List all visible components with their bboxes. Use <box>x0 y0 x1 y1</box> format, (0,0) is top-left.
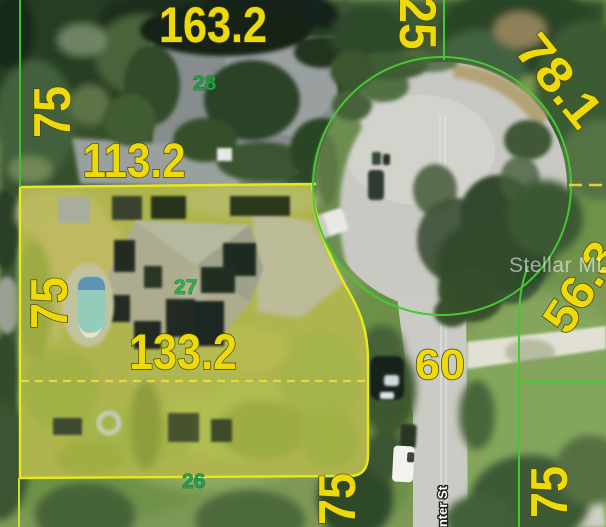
svg-text:75: 75 <box>309 473 367 525</box>
svg-text:113.2: 113.2 <box>83 135 186 188</box>
svg-text:133.2: 133.2 <box>129 324 237 380</box>
svg-text:75: 75 <box>21 277 79 329</box>
svg-text:163.2: 163.2 <box>159 0 267 53</box>
svg-text:Center St: Center St <box>435 485 450 527</box>
svg-text:28: 28 <box>193 72 217 95</box>
svg-text:26: 26 <box>182 470 205 493</box>
svg-text:Stellar MLS: Stellar MLS <box>509 254 606 277</box>
svg-text:75: 75 <box>521 466 579 518</box>
svg-text:75: 75 <box>24 86 82 138</box>
svg-text:27: 27 <box>174 276 197 299</box>
svg-text:25: 25 <box>388 0 446 50</box>
svg-text:60: 60 <box>415 341 465 389</box>
